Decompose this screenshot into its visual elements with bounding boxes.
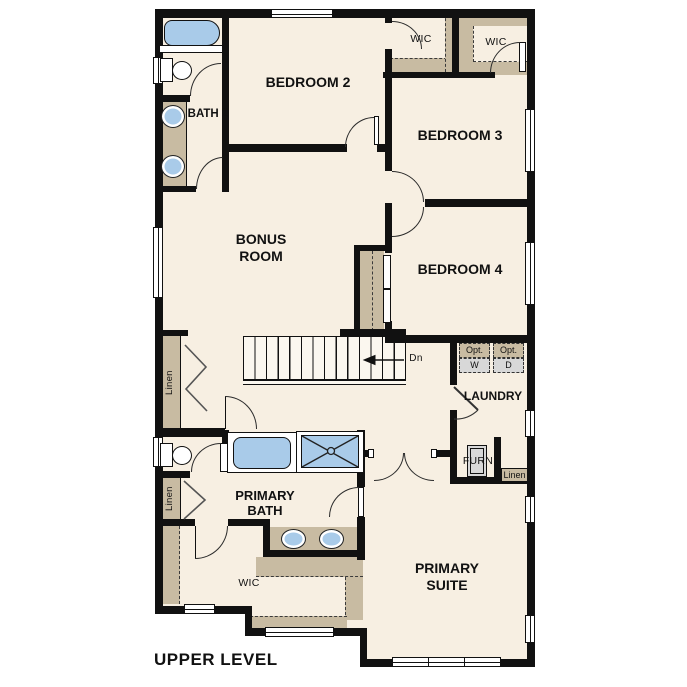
window-right-bedroom4 — [525, 242, 535, 305]
wall-wic-bottom — [383, 72, 495, 78]
room-label-primary-bath: PRIMARY BATH — [223, 488, 307, 519]
wall-toilet-nook-bottom — [158, 95, 190, 102]
wall-exterior-right — [527, 9, 535, 667]
wall-laundry-left-upper — [450, 342, 457, 385]
staircase — [243, 336, 406, 380]
room-label-bonus-room: BONUS ROOM — [219, 231, 303, 264]
window-top — [271, 9, 333, 18]
sink-bath2-1 — [161, 105, 185, 128]
tub-deck-bath2 — [160, 45, 222, 53]
washer-text: W — [470, 360, 479, 370]
window-bottom-suite-a — [392, 657, 429, 667]
room-label-laundry: LAUNDRY — [456, 389, 530, 403]
label-wic-primary: WIC — [231, 577, 267, 589]
toilet-bowl-bath2 — [172, 61, 192, 80]
stair-rail — [243, 380, 406, 385]
window-bottom-wic-left — [184, 604, 215, 614]
dryer-cell: D — [493, 358, 524, 373]
toilet-bowl-primary — [172, 446, 192, 465]
bathtub-bath2 — [164, 20, 220, 46]
room-label-bedroom4: BEDROOM 4 — [408, 261, 512, 278]
wall-ptoilet-bottom — [158, 471, 190, 478]
wall-laundry-left-lower — [450, 410, 457, 484]
wall-vanity-bottom — [266, 550, 364, 557]
washer-cell: W — [459, 358, 490, 373]
floor-right-extension — [363, 628, 527, 659]
wall-exterior-top — [155, 9, 535, 18]
washer-opt-label-cell: Opt. — [459, 343, 490, 358]
wall-tub-nook-right — [222, 13, 229, 97]
dryer-text: D — [505, 360, 512, 370]
closet-bypass-door-lower — [383, 289, 391, 323]
wall-bedroom3-bedroom4 — [425, 199, 527, 207]
floor-main — [158, 13, 532, 606]
window-right-suite-1 — [525, 496, 535, 523]
window-right-laundry — [525, 410, 535, 437]
shower-pan-primary — [301, 435, 359, 468]
sink-primary-2 — [319, 529, 344, 549]
label-wic-bedroom3: WIC — [478, 36, 514, 48]
dryer-box: Opt. D — [493, 343, 524, 373]
floor-plan-upper-level: Opt. W Opt. D Linen BEDROOM 2 BEDROOM 3 … — [0, 0, 687, 687]
label-linen-hall: Linen — [164, 352, 180, 414]
dryer-opt-label-cell: Opt. — [493, 343, 524, 358]
door-leaf-wic-bedroom3 — [519, 42, 526, 72]
room-label-bedroom3: BEDROOM 3 — [408, 127, 512, 144]
wic-primary-shelf-left — [163, 526, 180, 604]
linen-laundry-label: Linen — [502, 470, 527, 480]
wic-bedroom2-shelf — [390, 58, 452, 72]
label-wic-bedroom2: WIC — [403, 33, 439, 45]
room-label-bedroom2: BEDROOM 2 — [258, 74, 358, 91]
wic-primary-shelf-right — [345, 577, 363, 620]
window-bottom-suite-c — [464, 657, 501, 667]
dryer-opt-text: Opt. — [500, 345, 517, 355]
wall-bath2-bottom — [158, 186, 196, 192]
label-furnace: FURN — [459, 455, 497, 467]
wall-wic-primary-top-left — [158, 519, 195, 526]
bedroom4-closet-shelf — [360, 251, 384, 331]
room-label-bath2: BATH 2 — [186, 108, 230, 122]
wall-hall-vertical-b — [385, 49, 392, 171]
wall-stair-top — [340, 329, 406, 337]
sink-primary-1 — [281, 529, 306, 549]
wall-pbath-top — [158, 428, 225, 437]
window-bottom-suite-b — [428, 657, 465, 667]
wall-closet-top — [354, 245, 392, 251]
window-left-bonus — [153, 227, 163, 298]
wic-primary-shelf-top — [256, 557, 363, 577]
washer-box: Opt. W — [459, 343, 490, 373]
wall-bedroom2-bottom — [228, 144, 347, 152]
closet-bypass-door-upper — [383, 255, 391, 289]
label-stairs-down: Dn — [406, 353, 426, 365]
linen-laundry-cabinet: Linen — [501, 468, 528, 482]
plan-title: UPPER LEVEL — [154, 650, 334, 670]
wall-linen-hall-top — [158, 330, 188, 336]
washer-opt-text: Opt. — [466, 345, 483, 355]
closet-shelf-dash — [372, 251, 374, 331]
bathtub-primary — [233, 437, 291, 469]
label-linen-bath: Linen — [164, 481, 180, 517]
wic-divider-shelf — [445, 13, 452, 72]
wall-hall-vertical-a — [385, 13, 392, 23]
sink-bath2-2 — [161, 155, 185, 178]
wall-closet-left — [354, 245, 360, 335]
window-right-bedroom3 — [525, 109, 535, 172]
window-right-suite-2 — [525, 615, 535, 643]
window-bottom-wic-mid — [265, 627, 334, 637]
door-leaf-bedroom2 — [374, 116, 379, 145]
wall-suite-top-right — [436, 450, 452, 457]
room-label-primary-suite: PRIMARY SUITE — [398, 560, 496, 593]
wall-wic-divider — [452, 13, 459, 77]
